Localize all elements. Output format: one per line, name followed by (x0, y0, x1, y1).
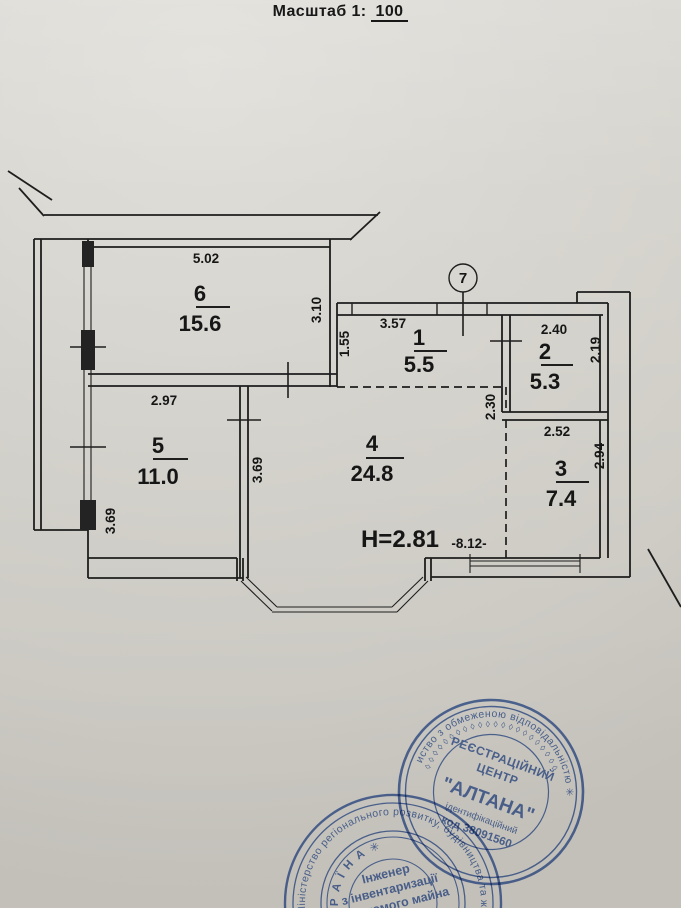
room5-number: 5 (152, 433, 164, 458)
room5-area: 11.0 (137, 464, 179, 489)
wall-top-band (34, 212, 380, 240)
dim-room6-height: 3.10 (309, 297, 324, 323)
room2-number: 2 (539, 339, 551, 364)
room6-area: 15.6 (179, 311, 222, 336)
wall-room1-room2 (502, 315, 510, 412)
dim-room1-width: 3.57 (380, 316, 406, 331)
exterior-walls (8, 171, 681, 607)
break-mark-bottom-right (648, 549, 681, 607)
room4-area: 24.8 (351, 461, 394, 486)
window-bay (241, 577, 428, 612)
balcony-mark-number: 7 (459, 270, 467, 287)
dim-room3-height: 2.94 (592, 442, 607, 469)
room1-area: 5.5 (404, 352, 435, 377)
wall-left-outer (34, 239, 88, 530)
wall-segment-ticks (352, 303, 487, 315)
wall-right-outer (577, 292, 630, 577)
dim-room5-width: 2.97 (151, 393, 177, 408)
level-mark-label: -8.12- (451, 536, 486, 551)
room3-number: 3 (555, 456, 567, 481)
room-labels: 5.02 6 15.6 3.10 1.55 3.57 1 5.5 2.40 2.… (103, 251, 607, 553)
plan-drawing: 7 5.02 6 15.6 3.10 1.55 3.57 1 5.5 2.40 … (0, 0, 681, 908)
pier-bottom (80, 500, 96, 530)
wall-room2-room3 (502, 412, 608, 420)
room3-area: 7.4 (546, 486, 577, 511)
interior-walls (88, 239, 608, 581)
dim-room2-height: 2.19 (588, 337, 603, 363)
pier-middle (81, 330, 95, 370)
floor-plan-sheet: Масштаб 1:100 (0, 0, 681, 908)
dim-room3-width: 2.52 (544, 424, 570, 439)
ceiling-height-label: H=2.81 (361, 526, 439, 553)
dim-room6-width: 5.02 (193, 251, 219, 266)
window-left-balcony (84, 252, 91, 528)
room1-number: 1 (413, 325, 425, 350)
dim-room2-width: 2.40 (541, 322, 567, 337)
room6-number: 6 (194, 281, 206, 306)
wall-bay-steps (237, 558, 431, 581)
dim-room1-height: 1.55 (337, 330, 352, 357)
dim-hall-depth: 2.30 (483, 394, 498, 420)
pier-top (82, 241, 94, 267)
dim-room5-height-right: 3.69 (250, 457, 265, 483)
window-bottom-right (470, 554, 580, 573)
wall-bottom-left (88, 558, 243, 578)
wall-room6-bottom (88, 374, 337, 386)
room4-number: 4 (366, 431, 379, 456)
wall-room5-room4 (240, 386, 248, 578)
balcony-mark: 7 (449, 264, 477, 292)
room2-area: 5.3 (530, 369, 561, 394)
break-mark-top-left (8, 171, 52, 216)
dim-room5-height-left: 3.69 (103, 508, 118, 534)
wall-room1-top (337, 303, 608, 315)
